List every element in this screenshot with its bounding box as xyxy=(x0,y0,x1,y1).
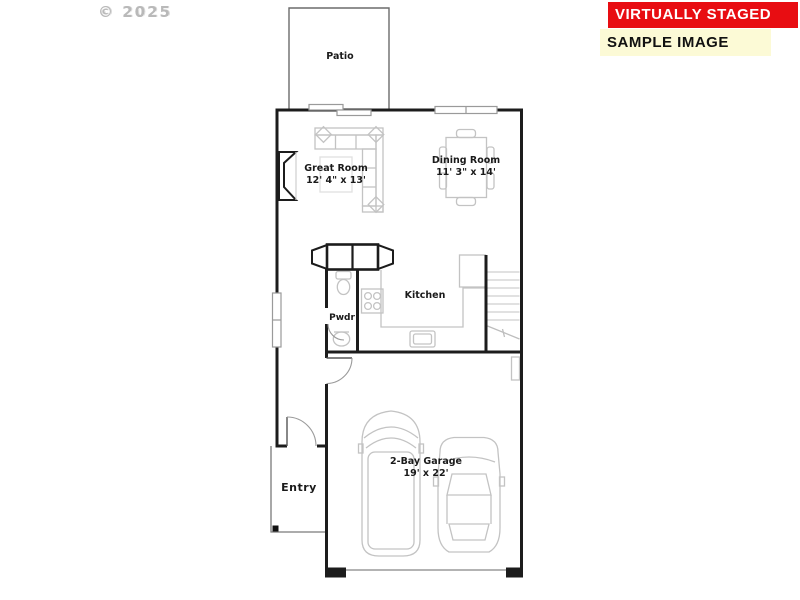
dining-room-name: Dining Room xyxy=(426,155,506,167)
water-heater xyxy=(512,357,520,380)
sedan xyxy=(434,438,505,553)
garage-label: 2-Bay Garage 19' x 22' xyxy=(386,456,466,480)
toilet xyxy=(336,272,351,295)
entry-label: Entry xyxy=(269,482,329,494)
dining-room-label: Dining Room 11' 3" x 14' xyxy=(426,155,506,179)
doors-layer xyxy=(287,324,352,446)
great-room-name: Great Room xyxy=(296,163,376,175)
garage-dimensions: 19' x 22' xyxy=(386,468,466,480)
furniture-layer xyxy=(315,127,520,556)
garage-entry-door xyxy=(327,358,353,384)
powder-label: Pwdr xyxy=(322,312,362,324)
porch-post xyxy=(273,526,279,532)
powder-label-text: Pwdr xyxy=(329,313,355,323)
stairs xyxy=(488,272,520,339)
garage-door-wall xyxy=(325,568,523,578)
dining-room-dimensions: 11' 3" x 14' xyxy=(426,167,506,179)
floorplan-screenshot: © 2025 VIRTUALLY STAGED SAMPLE IMAGE xyxy=(0,0,800,600)
great-room-dimensions: 12' 4" x 13' xyxy=(296,175,376,187)
pantry-bay xyxy=(312,245,393,270)
cooktop xyxy=(362,289,384,313)
slider-door xyxy=(337,110,371,116)
kitchen-sink xyxy=(410,331,435,347)
garage-name: 2-Bay Garage xyxy=(386,456,466,468)
slider-door xyxy=(309,105,343,111)
refrigerator xyxy=(460,255,486,287)
patio-label: Patio xyxy=(310,51,370,63)
kitchen-label-text: Kitchen xyxy=(405,290,446,301)
front-door xyxy=(287,417,316,446)
fireplace xyxy=(279,152,296,200)
patio-label-text: Patio xyxy=(326,51,353,62)
kitchen-label: Kitchen xyxy=(395,290,455,302)
powder-sink xyxy=(333,332,349,346)
great-room-label: Great Room 12' 4" x 13' xyxy=(296,163,376,187)
entry-label-text: Entry xyxy=(281,481,317,494)
van xyxy=(359,411,424,556)
